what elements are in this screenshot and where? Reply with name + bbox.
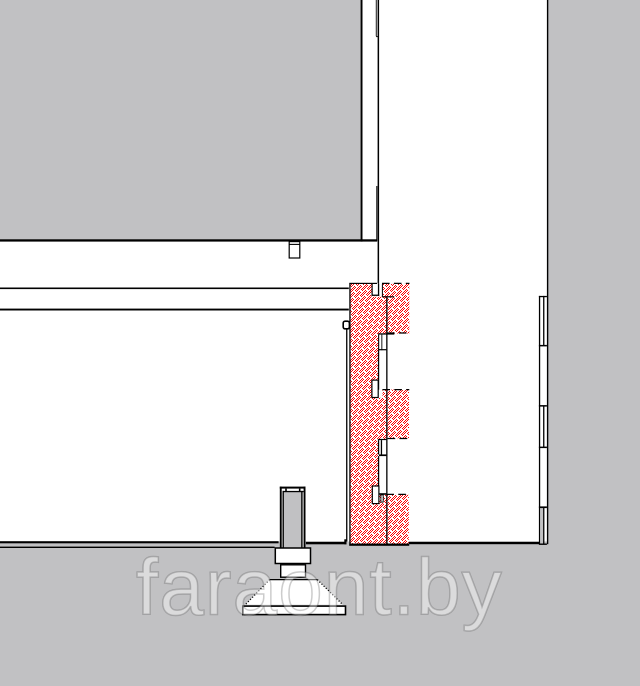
svg-text:faraont.by: faraont.by <box>136 543 503 632</box>
